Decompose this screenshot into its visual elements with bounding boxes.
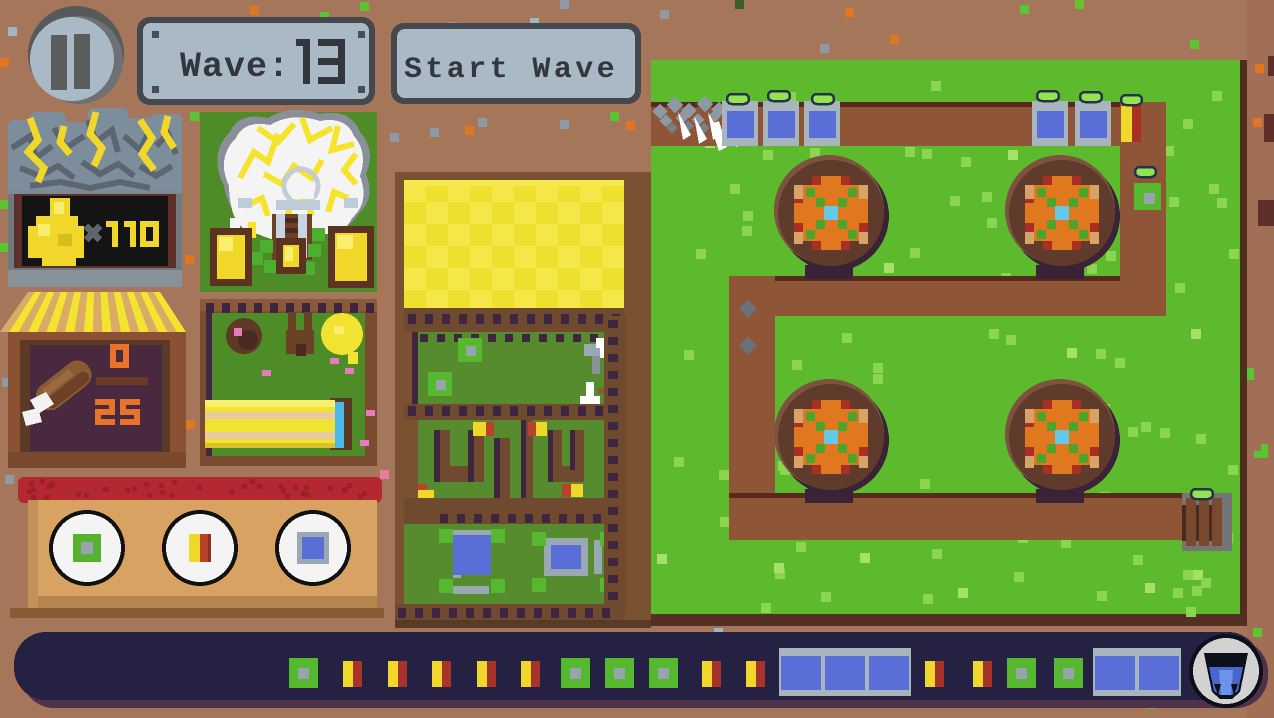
svg-text:Start Wave: Start Wave (404, 53, 618, 87)
svg-text:Wave:: Wave: (180, 47, 290, 87)
